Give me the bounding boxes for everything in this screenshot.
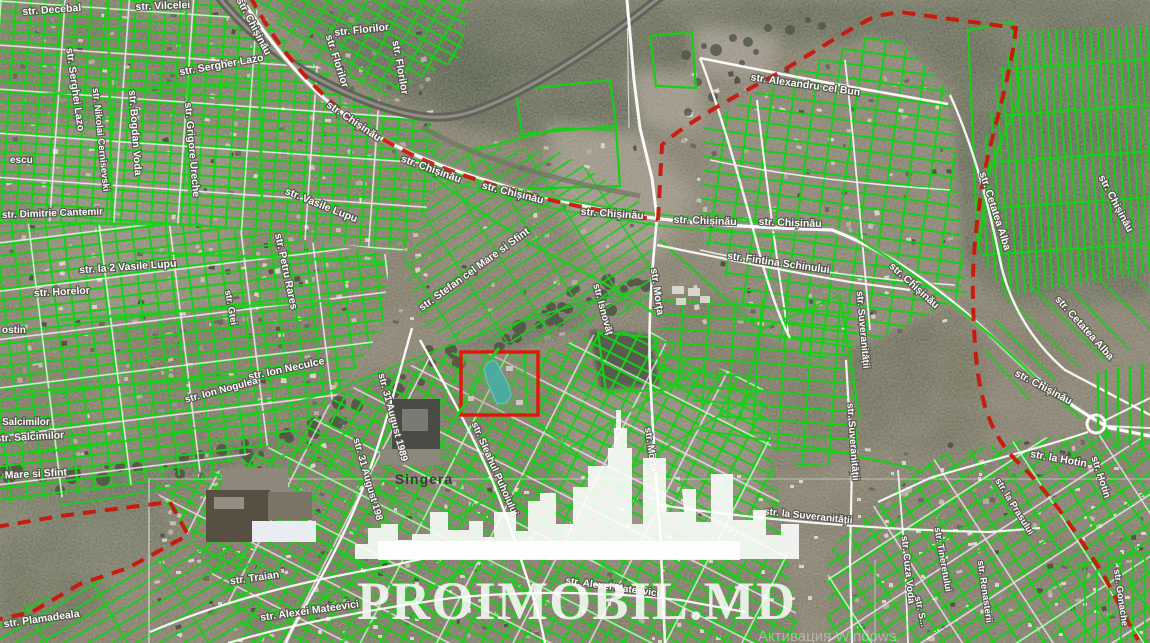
svg-text:str. Vilcelei: str. Vilcelei: [135, 0, 190, 13]
svg-text:str. Chișinău: str. Chișinău: [673, 214, 736, 228]
svg-text:PROIMOBIL.MD: PROIMOBIL.MD: [357, 571, 795, 631]
svg-text:str. Chișinău: str. Chișinău: [758, 216, 821, 230]
svg-text:escu: escu: [10, 155, 33, 166]
svg-text:ostin: ostin: [2, 325, 26, 336]
svg-text:Salcimilor: Salcimilor: [2, 417, 50, 428]
svg-text:Активация Windows: Активация Windows: [758, 628, 896, 643]
svg-text:Singera: Singera: [395, 471, 453, 487]
